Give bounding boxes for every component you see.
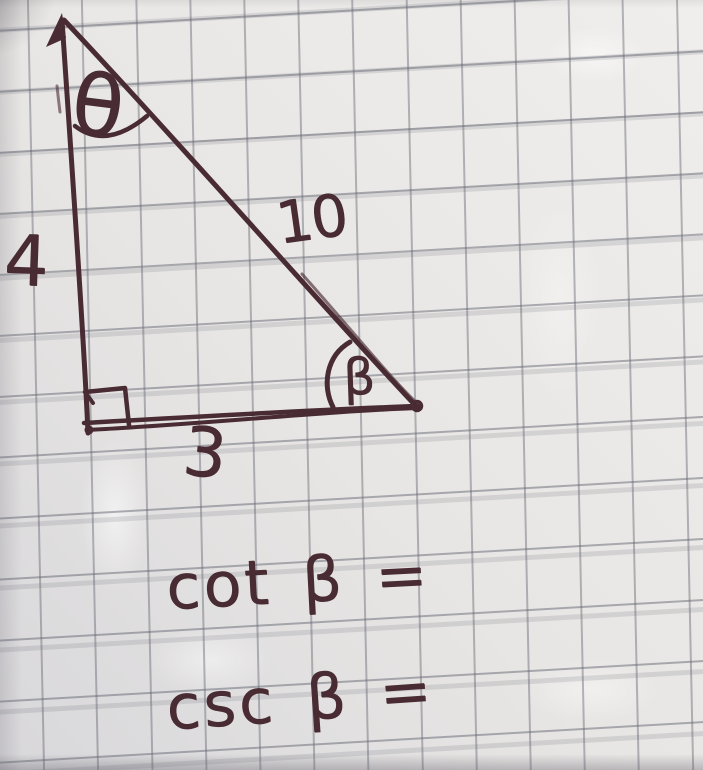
pen-double-stroke [57, 86, 60, 112]
cot-beta-expression: cot β = [165, 543, 432, 619]
csc-beta-expression: csc β = [164, 659, 436, 740]
vertical-side-length-label: 4 [3, 225, 50, 297]
notebook-page: θ 10 4 3 β cot β = csc β = [0, 0, 703, 770]
hypotenuse-length-label: 10 [272, 185, 349, 252]
base-length-label: 3 [180, 418, 230, 490]
angle-theta-label: θ [67, 61, 128, 151]
left-vertex-dot [85, 426, 94, 435]
angle-beta-label: β [342, 351, 376, 402]
